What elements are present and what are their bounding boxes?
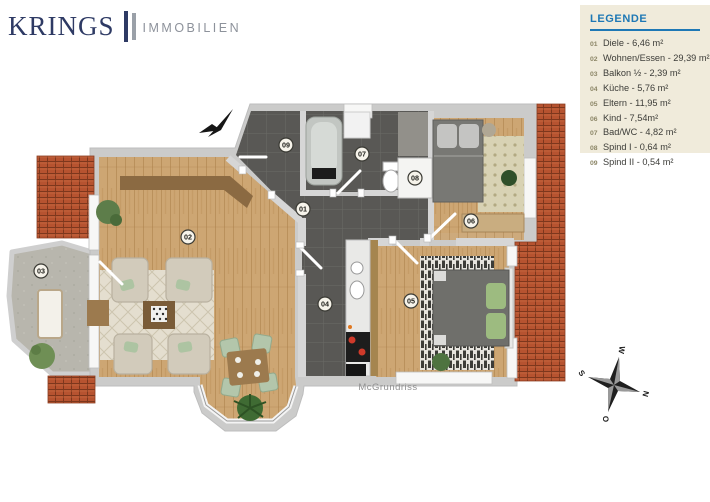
company-logo: KRINGS IMMOBILIEN bbox=[8, 8, 241, 44]
svg-text:04: 04 bbox=[321, 300, 329, 309]
svg-text:O: O bbox=[601, 416, 611, 423]
roof-top-left bbox=[37, 156, 94, 238]
svg-text:03: 03 bbox=[37, 267, 45, 276]
logo-name: KRINGS bbox=[8, 8, 115, 44]
kitchen-fixtures bbox=[346, 240, 370, 376]
compass-rose-icon: W N O S bbox=[576, 345, 650, 422]
legend-item-09: 09 Spind II - 0,54 m² bbox=[590, 156, 702, 171]
legend-item-07: 07 Bad/WC - 4,82 m² bbox=[590, 126, 702, 141]
svg-text:07: 07 bbox=[358, 150, 366, 159]
rug bbox=[478, 136, 524, 212]
shower bbox=[398, 112, 428, 156]
shower-niche bbox=[344, 112, 370, 138]
roof-bottom-left bbox=[48, 376, 95, 403]
legend-item-01: 01 Diele - 6,46 m² bbox=[590, 37, 702, 52]
stove bbox=[346, 332, 370, 362]
legend-item-04: 04 Küche - 5,76 m² bbox=[590, 82, 702, 97]
room-label-09: 09 bbox=[279, 138, 293, 152]
room-label-08: 08 bbox=[408, 171, 422, 185]
plant bbox=[501, 170, 517, 186]
toilet bbox=[383, 170, 399, 192]
legend-divider bbox=[590, 29, 700, 31]
svg-text:02: 02 bbox=[184, 233, 192, 242]
lounger bbox=[38, 290, 62, 338]
fridge bbox=[346, 364, 366, 376]
svg-text:05: 05 bbox=[407, 297, 415, 306]
side-table bbox=[87, 300, 109, 326]
svg-text:W: W bbox=[616, 345, 626, 354]
svg-text:09: 09 bbox=[282, 141, 290, 150]
legend-item-08: 08 Spind I - 0,64 m² bbox=[590, 141, 702, 156]
legend-panel: LEGENDE 01 Diele - 6,46 m² 02 Wohnen/Ess… bbox=[580, 5, 710, 153]
svg-text:S: S bbox=[576, 369, 587, 379]
legend-item-05: 05 Eltern - 11,95 m² bbox=[590, 97, 702, 112]
legend-item-06: 06 Kind - 7,54m² bbox=[590, 112, 702, 127]
balcony bbox=[9, 243, 92, 374]
pillow bbox=[486, 283, 506, 309]
logo-divider-bars-icon bbox=[124, 11, 136, 42]
dining-table bbox=[226, 348, 269, 386]
legend-title: LEGENDE bbox=[590, 13, 702, 25]
room-label-07: 07 bbox=[355, 147, 369, 161]
watermark: McGrundriss bbox=[358, 382, 417, 393]
legend-item-02: 02 Wohnen/Essen - 29,39 m² bbox=[590, 52, 702, 67]
room-label-01: 01 bbox=[296, 202, 310, 216]
logo-subtitle: IMMOBILIEN bbox=[143, 21, 242, 35]
svg-text:08: 08 bbox=[411, 174, 419, 183]
svg-text:N: N bbox=[640, 390, 650, 398]
legend-item-03: 03 Balkon ½ - 2,39 m² bbox=[590, 67, 702, 82]
room-label-05: 05 bbox=[404, 294, 418, 308]
bathtub bbox=[311, 122, 337, 174]
room-label-06: 06 bbox=[464, 214, 478, 228]
side-table bbox=[482, 123, 496, 137]
pillow bbox=[486, 313, 506, 339]
svg-text:01: 01 bbox=[299, 205, 307, 214]
room-label-03: 03 bbox=[34, 264, 48, 278]
sink bbox=[350, 281, 364, 299]
north-arrow-icon bbox=[199, 109, 233, 137]
room-label-02: 02 bbox=[181, 230, 195, 244]
svg-text:06: 06 bbox=[467, 217, 475, 226]
plant bbox=[432, 353, 450, 371]
room-label-04: 04 bbox=[318, 297, 332, 311]
